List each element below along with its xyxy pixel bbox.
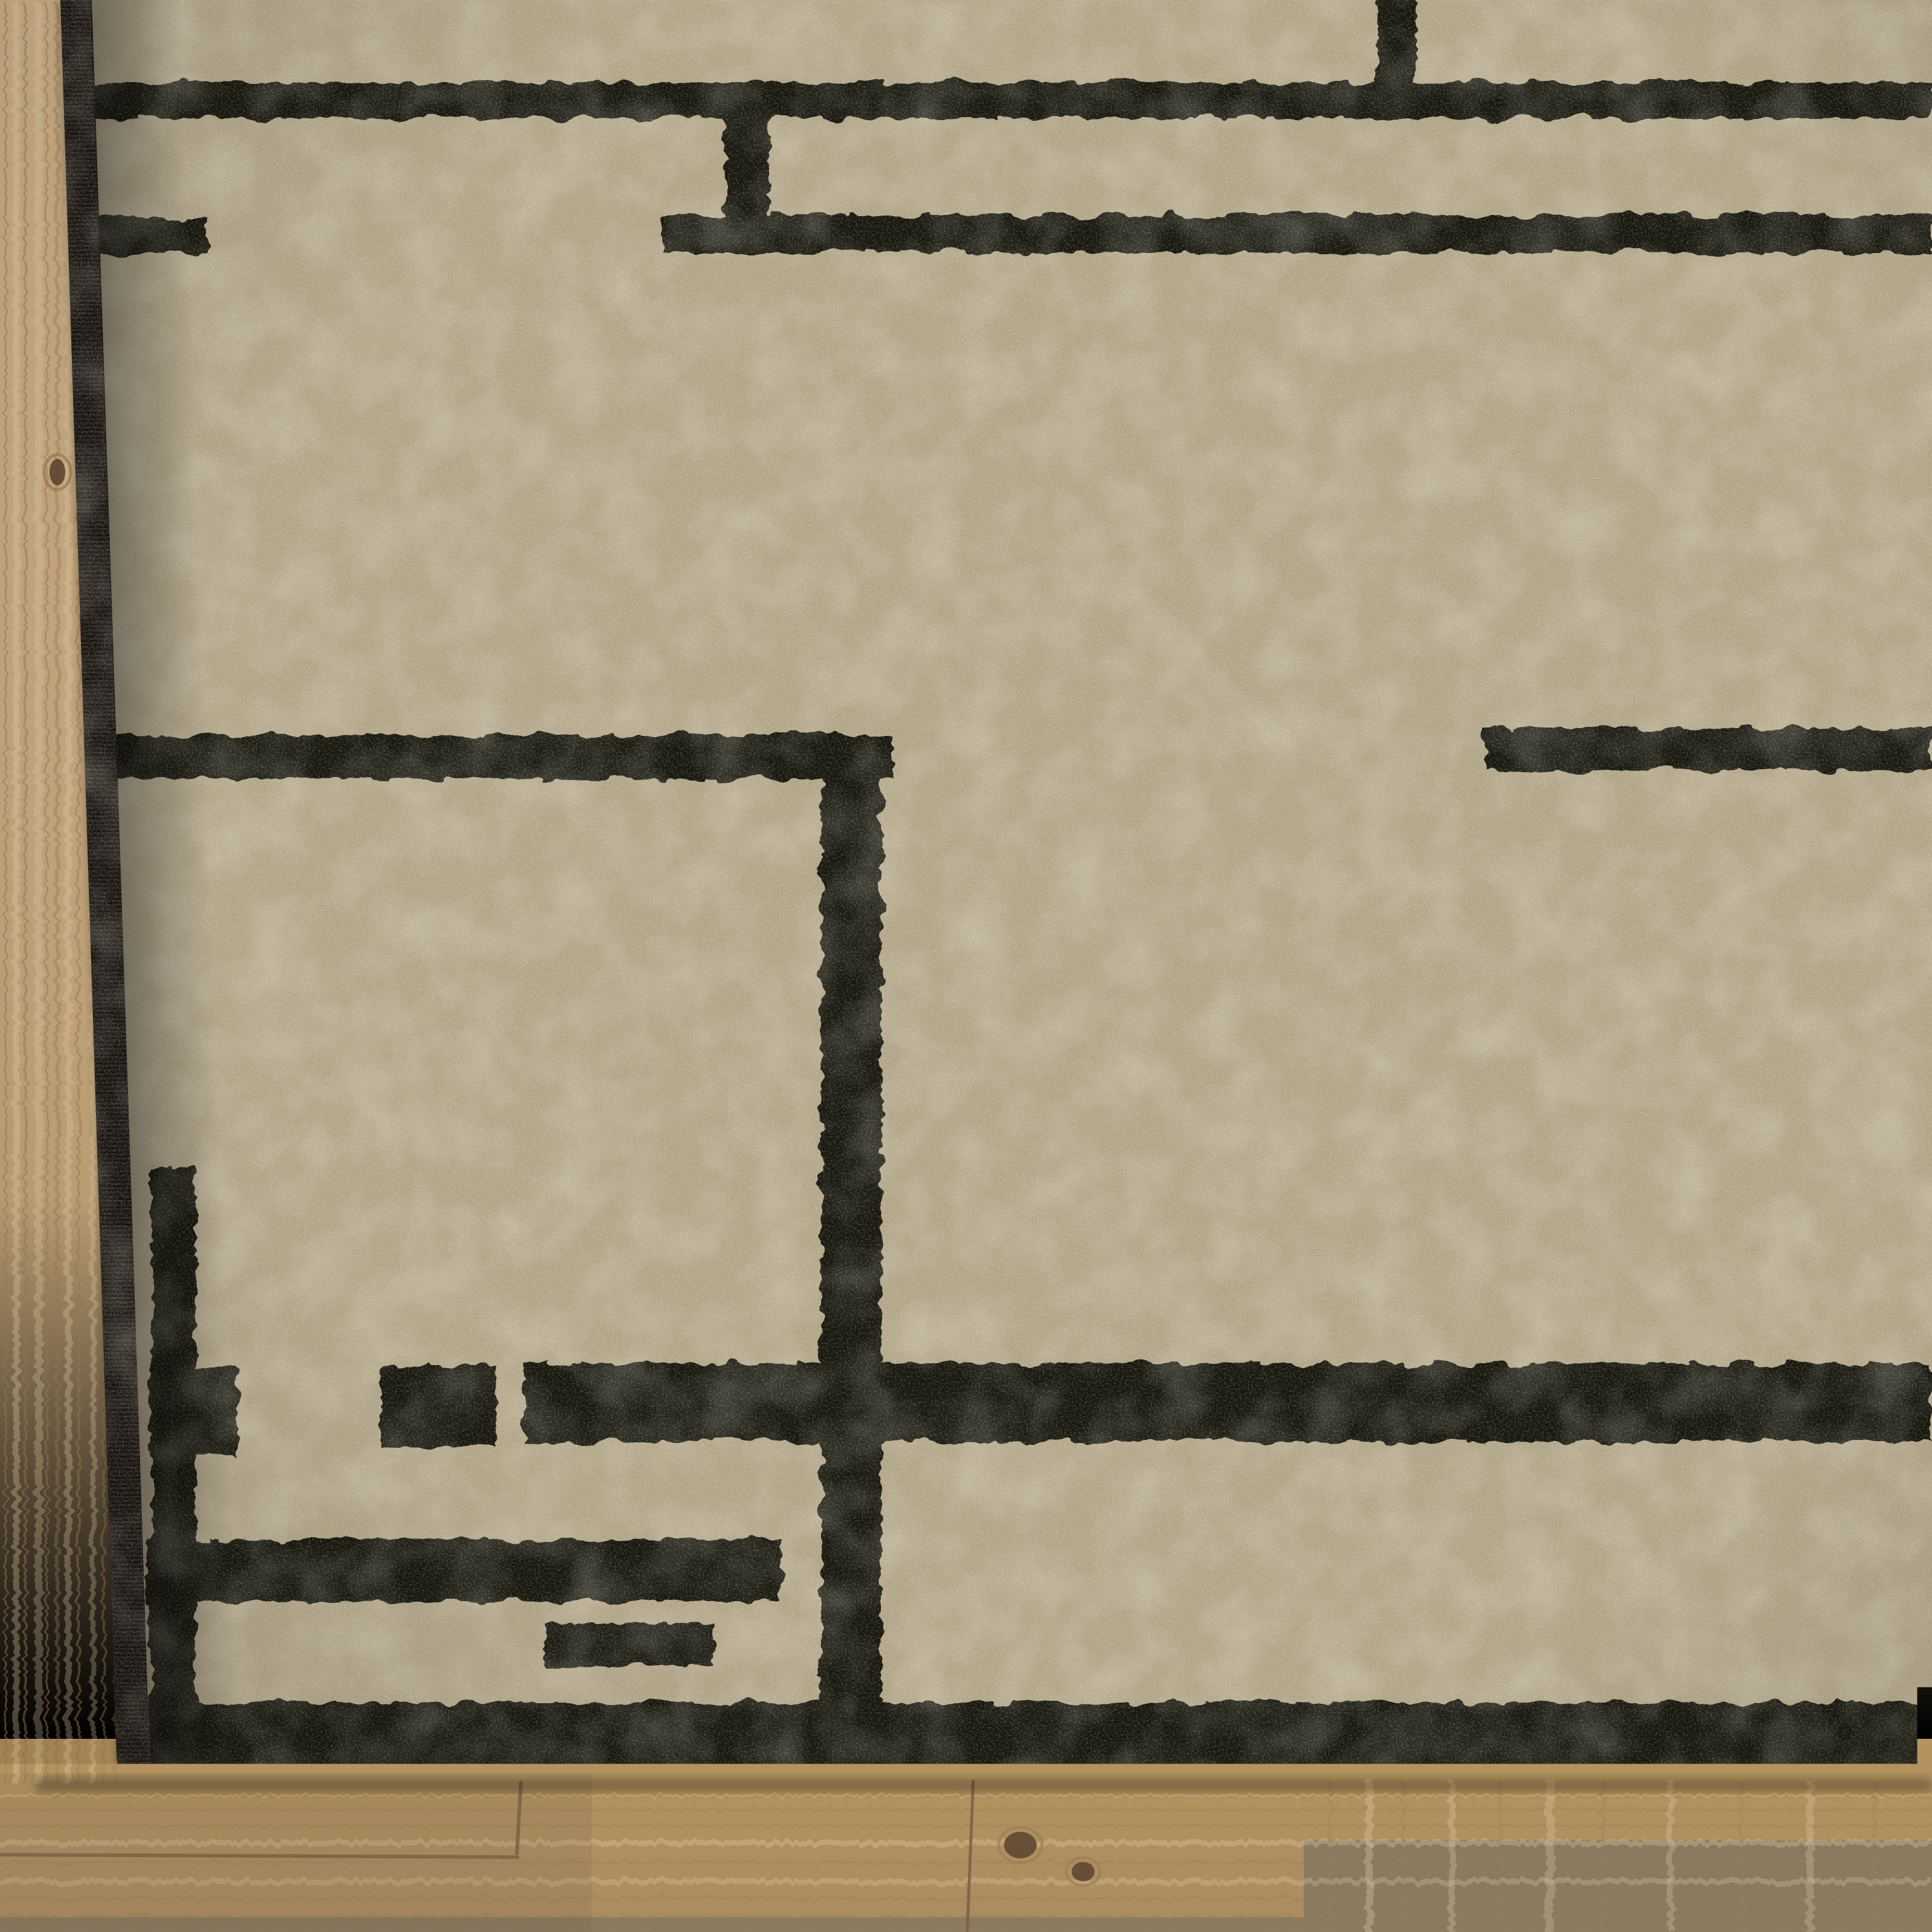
rug-product-photo [0,0,1932,1932]
rug-on-wood-floor-illustration [0,0,1932,1932]
photo-vignette [0,0,1932,1932]
